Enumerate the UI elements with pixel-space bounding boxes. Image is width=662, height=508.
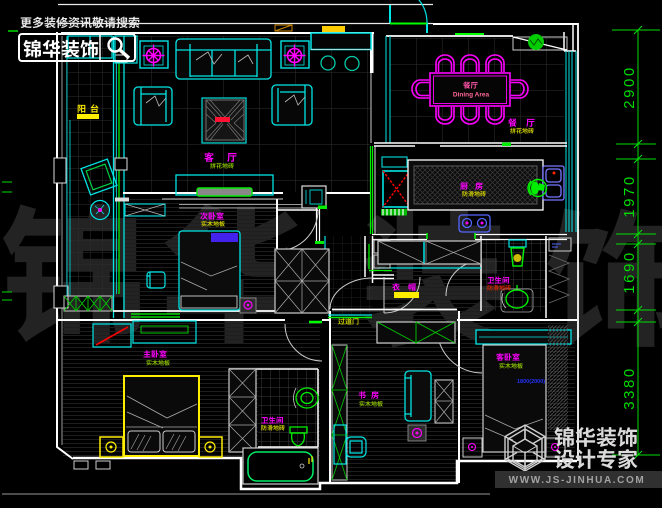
svg-text:1970: 1970: [621, 174, 638, 217]
svg-text:3380: 3380: [621, 366, 638, 409]
svg-text:1800(2000): 1800(2000): [517, 379, 545, 385]
svg-text:WWW.JS-JINHUA.COM: WWW.JS-JINHUA.COM: [509, 475, 646, 486]
svg-text:2900: 2900: [621, 65, 638, 108]
svg-text:Dining Area: Dining Area: [453, 92, 490, 99]
svg-text:1690: 1690: [621, 250, 638, 293]
